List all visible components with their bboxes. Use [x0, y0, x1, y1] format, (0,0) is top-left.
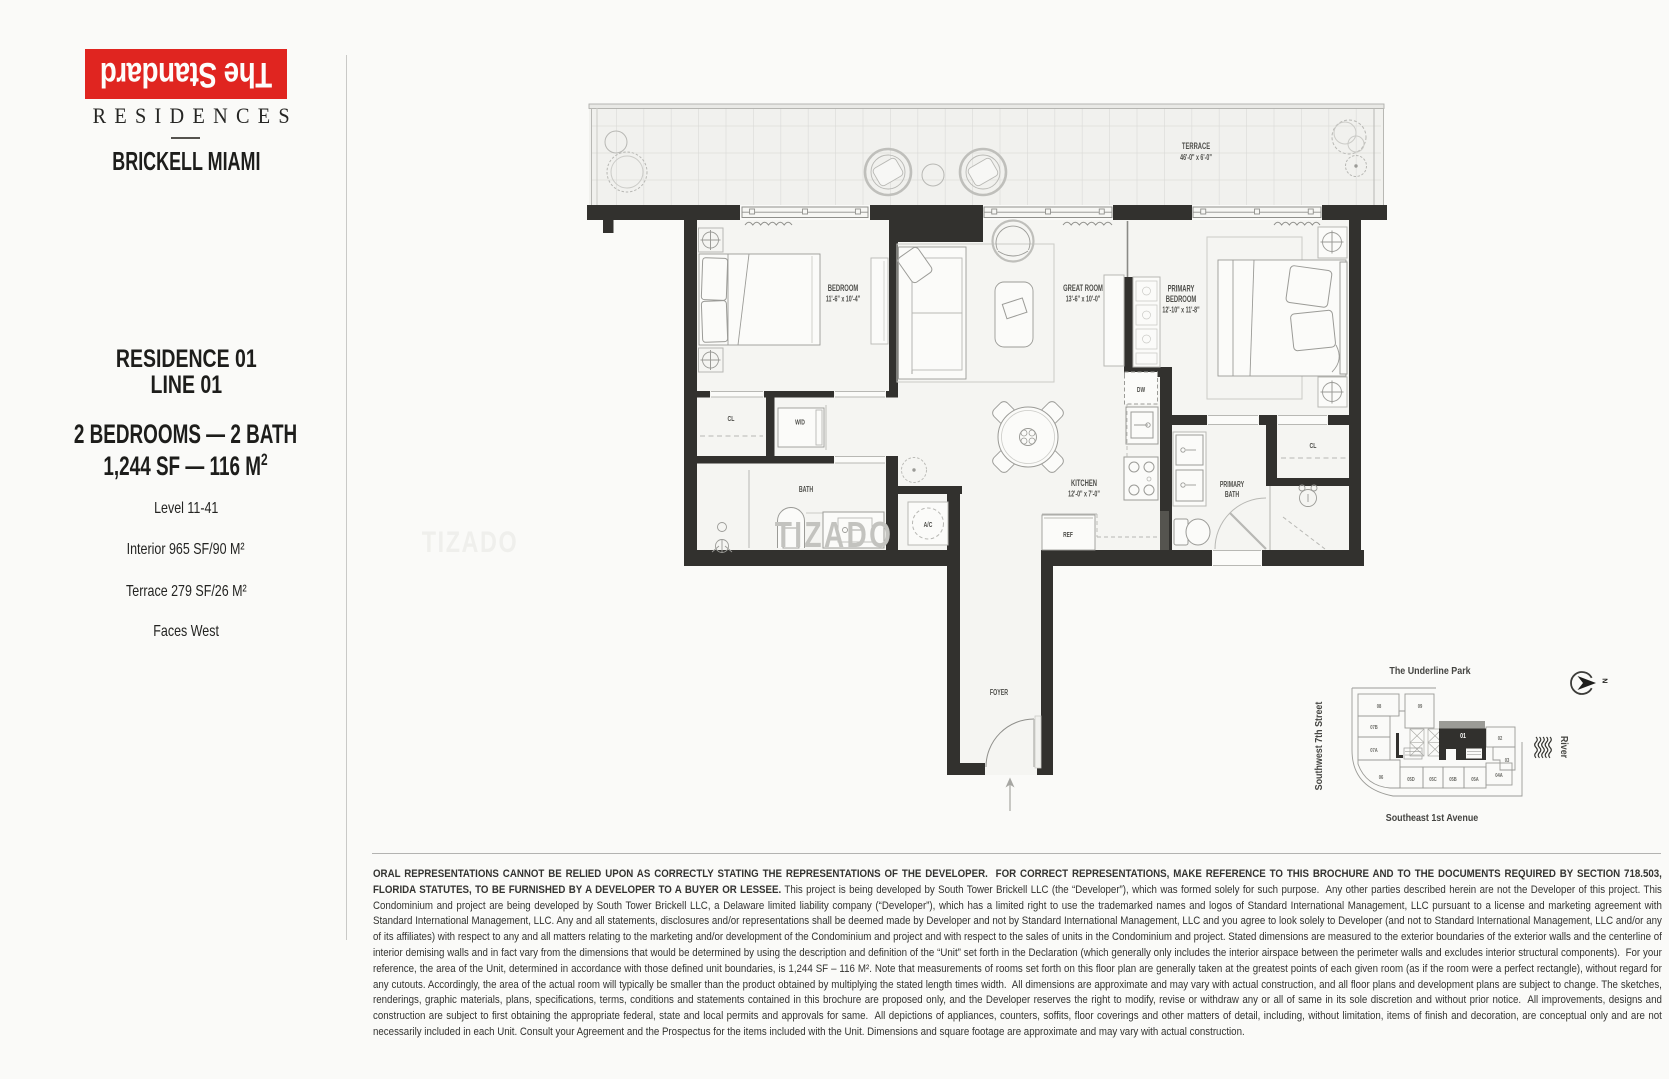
svg-text:BATH: BATH: [1225, 491, 1239, 499]
svg-text:03: 03: [1505, 757, 1510, 764]
svg-text:07B: 07B: [1370, 724, 1378, 731]
svg-text:KITCHEN: KITCHEN: [1071, 478, 1097, 489]
svg-text:GREAT ROOM: GREAT ROOM: [1063, 283, 1103, 294]
svg-text:PRIMARY: PRIMARY: [1168, 283, 1195, 294]
svg-text:05D: 05D: [1407, 776, 1415, 783]
svg-text:07A: 07A: [1370, 747, 1378, 754]
svg-text:Southwest 7th Street: Southwest 7th Street: [1313, 701, 1325, 790]
svg-text:TIZADO: TIZADO: [775, 515, 893, 555]
svg-text:04A: 04A: [1495, 772, 1503, 779]
svg-text:05A: 05A: [1471, 776, 1479, 783]
svg-text:The Underline Park: The Underline Park: [1389, 665, 1471, 677]
svg-text:CL: CL: [1310, 442, 1317, 450]
svg-text:09: 09: [1418, 703, 1423, 710]
svg-text:N: N: [1601, 678, 1608, 683]
svg-text:TERRACE: TERRACE: [1182, 141, 1210, 152]
svg-text:BATH: BATH: [799, 486, 813, 494]
svg-text:REF: REF: [1063, 532, 1073, 539]
svg-text:08: 08: [1377, 703, 1382, 710]
svg-text:DW: DW: [1137, 387, 1145, 394]
svg-text:FOYER: FOYER: [990, 689, 1008, 697]
svg-text:05C: 05C: [1429, 776, 1437, 783]
svg-text:PRIMARY: PRIMARY: [1220, 481, 1245, 489]
svg-text:BEDROOM: BEDROOM: [1166, 294, 1197, 305]
svg-text:02: 02: [1498, 735, 1503, 742]
svg-text:W/D: W/D: [795, 419, 805, 427]
svg-text:CL: CL: [728, 415, 735, 423]
svg-text:13'-6" x 10'-0": 13'-6" x 10'-0": [1066, 296, 1101, 304]
svg-text:06: 06: [1379, 774, 1384, 781]
svg-text:12'-10" x 11'-8": 12'-10" x 11'-8": [1162, 307, 1199, 315]
svg-text:01: 01: [1460, 732, 1466, 740]
svg-text:46'-0" x 6'-0": 46'-0" x 6'-0": [1180, 154, 1212, 162]
svg-text:05B: 05B: [1449, 776, 1457, 783]
svg-text:11'-6" x 10'-4": 11'-6" x 10'-4": [826, 296, 860, 304]
svg-text:TIZADO: TIZADO: [422, 525, 518, 558]
svg-text:Southeast 1st Avenue: Southeast 1st Avenue: [1386, 812, 1479, 824]
svg-text:BEDROOM: BEDROOM: [828, 283, 859, 294]
svg-text:River: River: [1558, 736, 1570, 758]
svg-text:A/C: A/C: [924, 521, 933, 529]
svg-text:12'-0" x 7'-0": 12'-0" x 7'-0": [1068, 491, 1100, 499]
